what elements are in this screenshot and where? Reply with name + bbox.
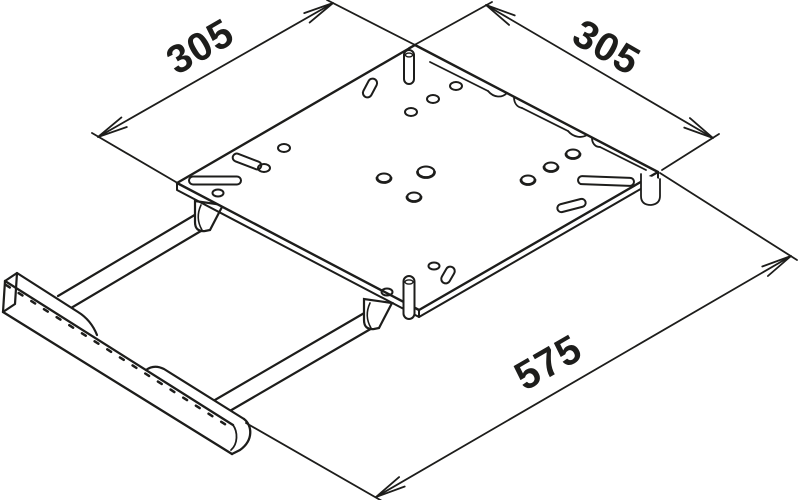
arrowhead [98, 117, 127, 137]
dimension-label-extended-length: 575 [507, 326, 589, 399]
handle-front-top-edge [5, 281, 233, 425]
arrowhead [684, 118, 713, 138]
rail-tube-edge [196, 312, 366, 411]
corner-flange-tab [641, 174, 660, 205]
extension-line [409, 2, 492, 48]
plate-top-face [177, 45, 658, 310]
arrowhead [762, 256, 791, 276]
tube-clamp-front [364, 299, 392, 329]
technical-drawing-canvas: 305 305 575 [0, 0, 800, 500]
handle-top-face [5, 273, 244, 425]
mounting-plate [177, 45, 660, 319]
extension-line [660, 173, 797, 260]
clamp-bracket [364, 299, 392, 329]
arrowhead [376, 477, 405, 497]
rail-tube-edge [58, 213, 198, 296]
extension-line [246, 423, 382, 500]
arrowhead [486, 5, 515, 25]
extension-line [662, 134, 719, 170]
dimension-label-plate-width: 305 [565, 11, 647, 84]
rail-tube-rear [58, 212, 208, 311]
extension-line [92, 133, 181, 185]
extension-line [327, 0, 421, 48]
arrowhead [304, 3, 333, 23]
dimension-label-plate-depth: 305 [159, 10, 241, 83]
handle-front-face [3, 281, 246, 454]
pull-handle [3, 273, 250, 454]
rail-tube-body [58, 212, 208, 311]
handle-front-bottom-edge [3, 312, 232, 454]
rail-tube-edge [66, 228, 206, 311]
technical-drawing-page: 305 305 575 [0, 0, 800, 500]
